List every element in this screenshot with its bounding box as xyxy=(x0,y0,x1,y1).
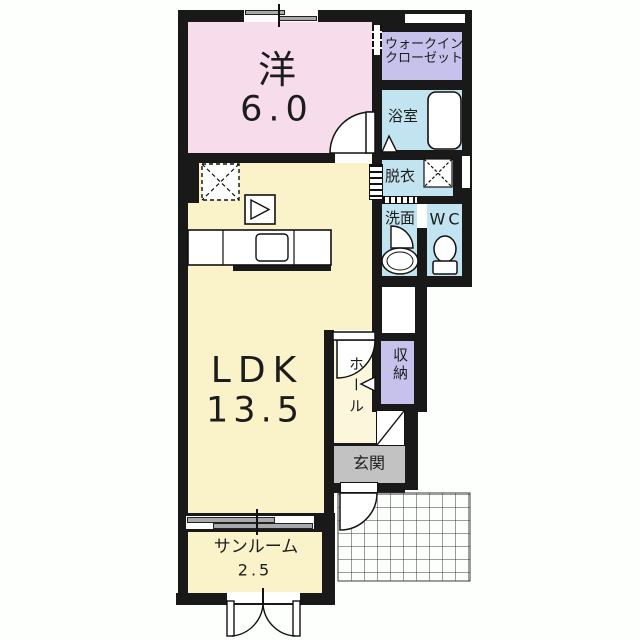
toilet xyxy=(433,236,457,274)
washing-machine-pan xyxy=(424,159,452,187)
label-sunroom-size: 2.5 xyxy=(238,563,272,580)
bathtub xyxy=(428,92,461,149)
label-wc: WC xyxy=(430,212,463,229)
label-bathroom: 浴室 xyxy=(388,109,418,125)
label-hall: ホール xyxy=(343,356,363,446)
kitchen-sink xyxy=(256,234,288,261)
label-wic-line1: ウォークイン xyxy=(385,38,463,52)
label-sunroom: サンルーム xyxy=(214,539,299,557)
shoe-cabinet-diagonal xyxy=(377,411,404,445)
label-western-size: 6.0 xyxy=(240,92,314,129)
stove-unit xyxy=(245,195,275,224)
label-storage: 収納 xyxy=(389,347,407,405)
washbasin xyxy=(382,248,418,274)
label-entrance: 玄関 xyxy=(353,456,385,473)
fixtures-layer xyxy=(0,0,640,640)
kitchen-counter xyxy=(188,230,331,265)
sunroom-french-doors xyxy=(227,601,300,636)
label-ldk: LDK xyxy=(211,352,303,390)
bedroom-door-arc xyxy=(330,112,375,153)
bathroom-door-mark xyxy=(382,136,397,152)
label-ldk-size: 13.5 xyxy=(206,393,304,430)
refrigerator-space xyxy=(202,164,239,200)
label-washroom: 洗面 xyxy=(385,211,415,227)
washroom-door-arc xyxy=(391,226,413,248)
label-wic-line2: クローゼット xyxy=(385,52,463,66)
floor-plan: 洋 6.0 ウォークイン クローゼット 浴室 脱衣 洗面 WC LDK 13.5… xyxy=(0,0,640,640)
label-dressing: 脱衣 xyxy=(385,169,415,185)
label-western-room: 洋 xyxy=(258,51,296,91)
